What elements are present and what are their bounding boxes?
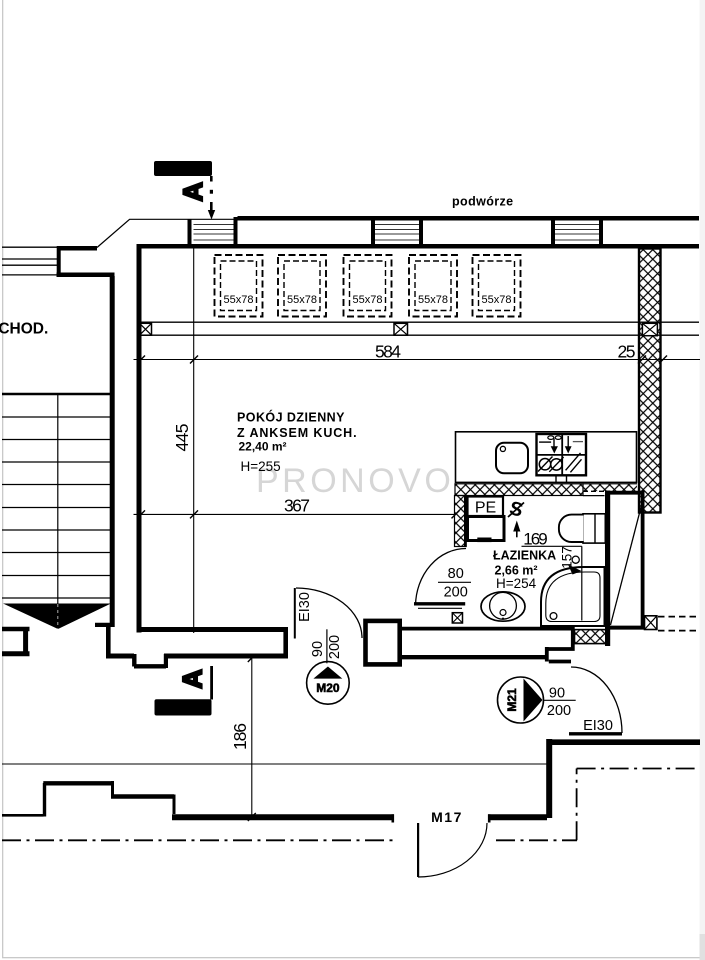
- svg-text:A: A: [178, 669, 208, 689]
- svg-text:200: 200: [444, 585, 468, 601]
- svg-text:445: 445: [172, 424, 192, 452]
- svg-text:367: 367: [284, 496, 310, 516]
- svg-text:M20: M20: [316, 681, 340, 695]
- svg-text:M21: M21: [505, 688, 519, 712]
- svg-text:podwórze: podwórze: [452, 195, 514, 209]
- svg-text:55x78: 55x78: [482, 294, 512, 306]
- svg-text:SCHOD.: SCHOD.: [0, 321, 48, 338]
- svg-text:A: A: [178, 182, 208, 202]
- svg-text:584: 584: [375, 342, 401, 362]
- svg-text:22,40 m²: 22,40 m²: [239, 440, 287, 454]
- svg-text:25: 25: [618, 342, 636, 362]
- svg-text:169: 169: [523, 530, 548, 549]
- svg-text:55x78: 55x78: [287, 294, 317, 306]
- svg-text:200: 200: [327, 635, 343, 659]
- svg-text:H=255: H=255: [241, 459, 281, 474]
- svg-text:186: 186: [230, 723, 250, 750]
- svg-text:200: 200: [547, 703, 571, 719]
- svg-text:Z ANKSEM KUCH.: Z ANKSEM KUCH.: [237, 426, 357, 440]
- svg-text:90: 90: [310, 641, 326, 657]
- svg-text:PE: PE: [475, 500, 496, 517]
- svg-text:55x78: 55x78: [353, 294, 383, 306]
- svg-text:EI30: EI30: [583, 718, 613, 734]
- svg-text:H=254: H=254: [496, 576, 537, 591]
- svg-text:PRONOVO: PRONOVO: [256, 462, 454, 500]
- svg-text:POKÓJ DZIENNY: POKÓJ DZIENNY: [237, 410, 345, 425]
- svg-text:EI30: EI30: [297, 592, 313, 622]
- svg-text:55x78: 55x78: [418, 294, 448, 306]
- svg-text:M17: M17: [431, 809, 463, 825]
- svg-text:ŁAZIENKA: ŁAZIENKA: [493, 549, 556, 563]
- svg-text:80: 80: [448, 566, 464, 582]
- svg-text:90: 90: [549, 686, 565, 702]
- svg-text:55x78: 55x78: [224, 294, 254, 306]
